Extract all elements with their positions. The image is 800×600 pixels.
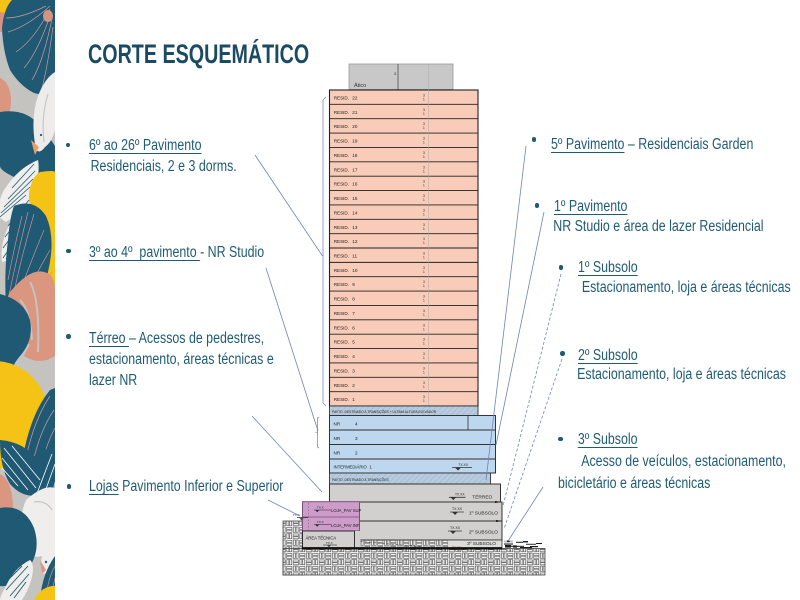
svg-text:2º SUBSOLO: 2º SUBSOLO (469, 530, 498, 536)
svg-text:RESID.: RESID. (334, 225, 349, 230)
svg-text:20: 20 (352, 124, 358, 129)
svg-text:RESID.: RESID. (334, 210, 349, 215)
svg-text:RESID.: RESID. (334, 368, 349, 373)
svg-text:1: 1 (423, 112, 425, 116)
svg-text:4: 4 (352, 354, 355, 359)
svg-text:RESID.: RESID. (334, 340, 349, 345)
svg-text:RESID.: RESID. (334, 167, 349, 172)
svg-text:1º SUBSOLO: 1º SUBSOLO (469, 510, 498, 516)
svg-text:1: 1 (423, 141, 425, 145)
svg-text:RESID.: RESID. (334, 268, 349, 273)
svg-text:1: 1 (423, 212, 425, 216)
svg-text:1: 1 (423, 327, 425, 331)
svg-text:TX.XX: TX.XX (459, 463, 469, 467)
svg-text:14: 14 (352, 210, 358, 215)
svg-text:1: 1 (423, 284, 425, 288)
svg-text:3: 3 (352, 368, 355, 373)
svg-text:1: 1 (423, 385, 425, 389)
svg-text:2: 2 (352, 383, 355, 388)
svg-text:15: 15 (352, 196, 358, 201)
svg-text:1: 1 (352, 397, 355, 402)
svg-text:PAVTO. DESTINADO A TRANSIÇÕES: PAVTO. DESTINADO A TRANSIÇÕES + ULTIMA A… (332, 409, 437, 414)
svg-text:19: 19 (352, 139, 358, 144)
svg-text:1: 1 (423, 126, 425, 130)
svg-text:ÁREA TÉCNICA: ÁREA TÉCNICA (306, 536, 337, 541)
svg-text:1: 1 (423, 256, 425, 260)
svg-text:RESID.: RESID. (334, 311, 349, 316)
svg-text:RESID.: RESID. (334, 196, 349, 201)
svg-text:NR: NR (334, 436, 341, 441)
svg-text:RESID.: RESID. (334, 96, 349, 101)
svg-text:1: 1 (423, 184, 425, 188)
svg-text:RESID.: RESID. (334, 354, 349, 359)
svg-text:1: 1 (423, 198, 425, 202)
svg-text:NR: NR (334, 451, 341, 456)
svg-text:1: 1 (423, 399, 425, 403)
svg-text:6: 6 (352, 325, 355, 330)
svg-text:RESID.: RESID. (334, 239, 349, 244)
svg-text:13: 13 (352, 225, 358, 230)
svg-text:TX.X: TX.X (317, 520, 324, 524)
svg-text:RESID.: RESID. (334, 383, 349, 388)
svg-text:11: 11 (352, 254, 357, 259)
svg-text:1: 1 (423, 370, 425, 374)
svg-text:1: 1 (423, 155, 425, 159)
svg-text:2: 2 (355, 451, 358, 456)
svg-text:RESID.: RESID. (334, 139, 349, 144)
svg-text:TX.X: TX.X (317, 506, 324, 510)
svg-text:1: 1 (423, 169, 425, 173)
svg-text:RESID.: RESID. (334, 297, 349, 302)
svg-text:7: 7 (352, 311, 355, 316)
svg-text:1: 1 (423, 98, 425, 102)
svg-text:RESID.: RESID. (334, 282, 349, 287)
svg-text:LOJA_PAV INF: LOJA_PAV INF (331, 523, 360, 528)
svg-text:1: 1 (423, 313, 425, 317)
svg-text:1: 1 (423, 342, 425, 346)
svg-text:TX.XX: TX.XX (450, 526, 461, 530)
svg-text:18: 18 (352, 153, 358, 158)
svg-text:1: 1 (423, 241, 425, 245)
svg-text:TÉRREO: TÉRREO (472, 494, 492, 501)
svg-text:3º SUBSOLO: 3º SUBSOLO (467, 541, 496, 547)
svg-text:10: 10 (352, 268, 358, 273)
svg-text:RESID.: RESID. (334, 325, 349, 330)
svg-text:NR: NR (334, 422, 341, 427)
svg-text:TX.X: TX.X (326, 541, 333, 545)
svg-text:5: 5 (352, 340, 355, 345)
svg-text:1: 1 (423, 356, 425, 360)
svg-text:1: 1 (423, 299, 425, 303)
svg-text:21: 21 (352, 110, 358, 115)
svg-text:4: 4 (355, 422, 358, 427)
svg-text:8: 8 (352, 297, 355, 302)
svg-text:RESID.: RESID. (334, 124, 349, 129)
svg-text:TX.XX: TX.XX (452, 507, 463, 511)
svg-text:RESID.: RESID. (334, 182, 349, 187)
svg-text:RESID.: RESID. (334, 153, 349, 158)
svg-text:22: 22 (352, 96, 358, 101)
svg-text:17: 17 (352, 167, 358, 172)
svg-text:Ático: Ático (354, 82, 366, 89)
svg-text:INTERMEDIÁRIO: INTERMEDIÁRIO (334, 465, 368, 470)
svg-text:12: 12 (352, 239, 358, 244)
svg-text:RESID.: RESID. (334, 110, 349, 115)
svg-text:RESID.: RESID. (334, 397, 349, 402)
svg-text:LOJA_PAV SUP: LOJA_PAV SUP (331, 508, 362, 513)
svg-text:9: 9 (352, 282, 355, 287)
svg-text:RESID.: RESID. (334, 254, 349, 259)
svg-text:3: 3 (355, 436, 358, 441)
svg-text:PAVTO. DESTINADO A TRANSIÇÕES: PAVTO. DESTINADO A TRANSIÇÕES (332, 477, 390, 482)
svg-text:1: 1 (423, 227, 425, 231)
svg-text:TX.XX: TX.XX (455, 493, 465, 497)
svg-text:1: 1 (423, 270, 425, 274)
svg-text:16: 16 (352, 182, 358, 187)
